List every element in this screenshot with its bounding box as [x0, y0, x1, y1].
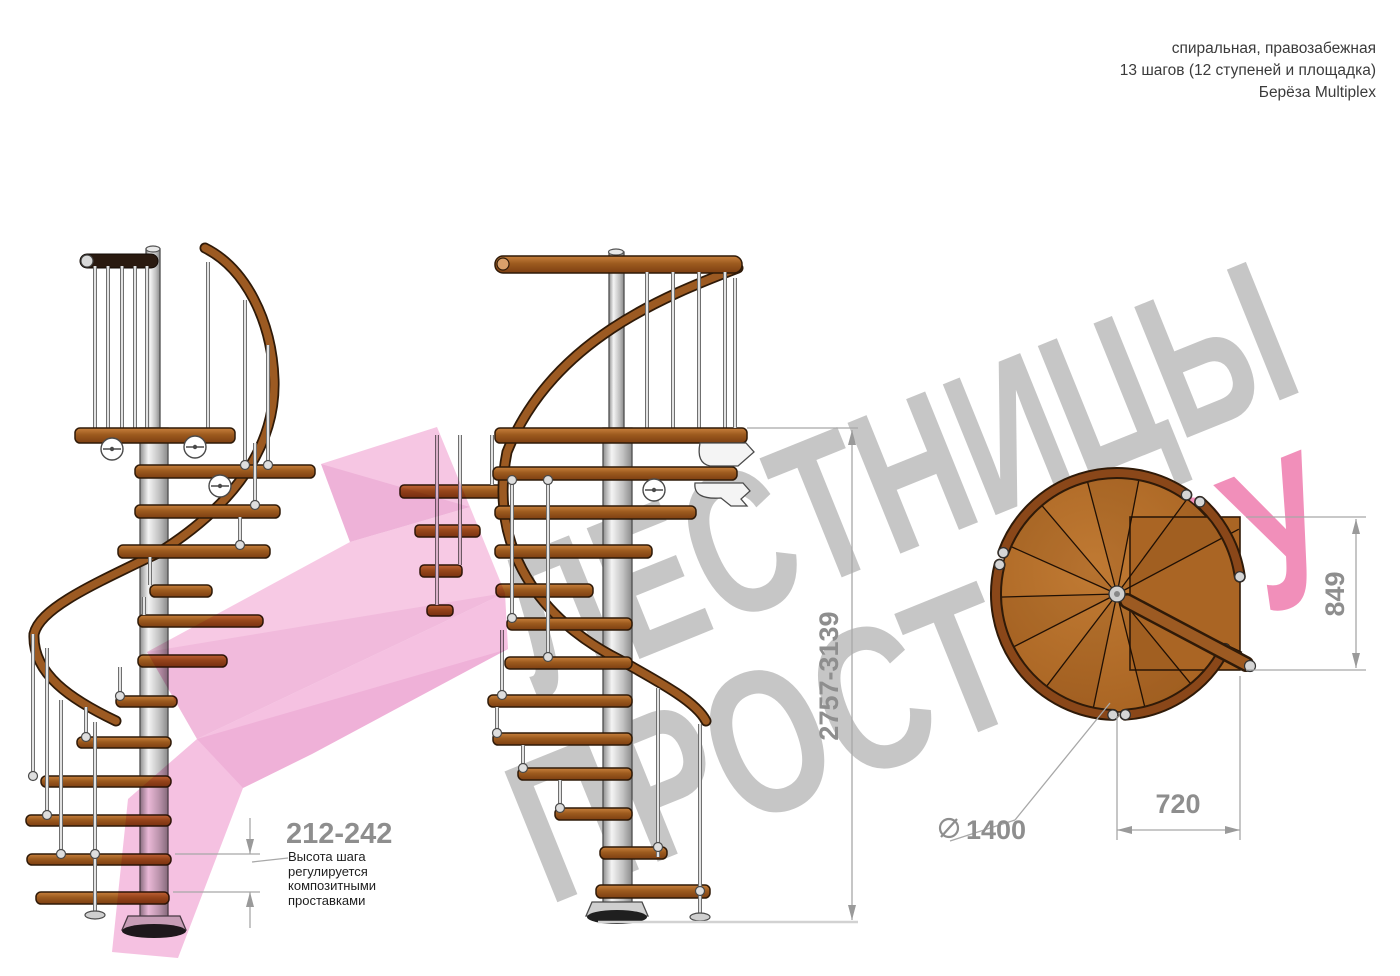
- staircase-drawing: ЛЕСТНИЦЫ ПРОСТО.РУ: [0, 0, 1400, 976]
- step-height-note: Высота шага регулируется композитными пр…: [288, 850, 376, 908]
- platform-board-front: [495, 428, 747, 443]
- diameter-value: 1400: [966, 815, 1026, 845]
- top-rail-front: [495, 256, 742, 273]
- total-height-value: 2757-3139: [814, 611, 844, 740]
- drawing-canvas: ЛЕСТНИЦЫ ПРОСТО.РУ: [0, 0, 1400, 976]
- platform-board: [75, 428, 235, 443]
- title-line-material: Берёза Multiplex: [1120, 82, 1376, 104]
- step-height-value: 212-242: [286, 818, 392, 850]
- title-block: спиральная, правозабежная 13 шагов (12 с…: [1120, 38, 1376, 104]
- title-line-steps: 13 шагов (12 ступеней и площадка): [1120, 60, 1376, 82]
- title-line-type: спиральная, правозабежная: [1120, 38, 1376, 60]
- top-balusters-left: [95, 266, 147, 428]
- landing-side-value: 849: [1320, 571, 1350, 616]
- landing-width-value: 720: [1155, 789, 1200, 819]
